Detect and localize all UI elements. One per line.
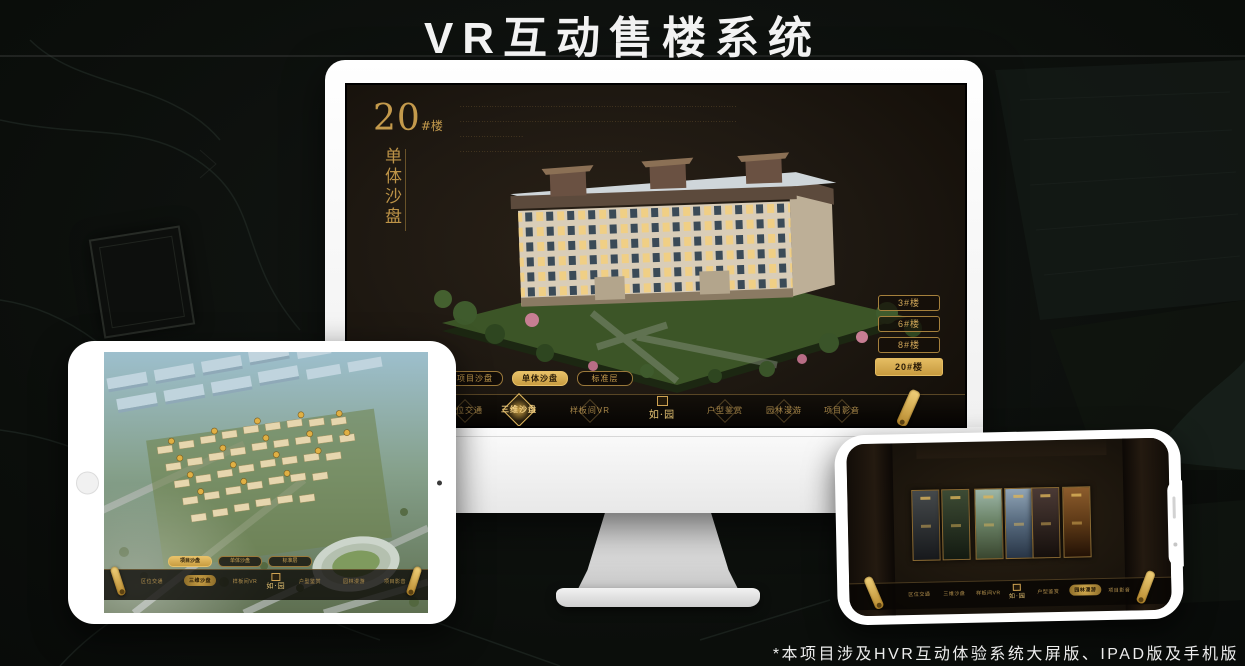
tablet-nav-showroom-vr[interactable]: 样板间VR — [233, 578, 257, 585]
tablet-nav-3d-sandtable[interactable]: 三维沙盘 — [184, 575, 216, 586]
floor-button-group: 3#楼 6#楼 8#楼 20#楼 — [875, 295, 943, 381]
floor-button-3[interactable]: 3#楼 — [878, 295, 940, 311]
tablet-nav-unit-gallery[interactable]: 户型鉴赏 — [299, 578, 321, 585]
brand-text: 如·园 — [266, 581, 285, 591]
phone-device: 区位交通 三维沙盘 样板间VR 如·园 户型鉴赏 园林漫游 项目影音 — [834, 428, 1184, 625]
phone-notch — [1167, 480, 1184, 566]
intro-line: ········································… — [460, 145, 642, 160]
scroll-icon[interactable] — [406, 565, 423, 596]
scroll-menu-icon[interactable] — [896, 388, 922, 427]
scene-panel-interior[interactable] — [1062, 486, 1091, 558]
phone-screen: 区位交通 三维沙盘 样板间VR 如·园 户型鉴赏 园林漫游 项目影音 — [846, 438, 1172, 617]
subtab-single-sandtable[interactable]: 单体沙盘 — [512, 371, 568, 386]
sandtable-subtabs: 项目沙盘 单体沙盘 标准层 — [447, 371, 633, 386]
phone-bottom-nav: 区位交通 三维沙盘 样板间VR 如·园 户型鉴赏 园林漫游 项目影音 — [849, 577, 1171, 611]
tablet-screen: 项目沙盘 单体沙盘 标准层 区位交通 三维沙盘 样板间VR 如·园 户型鉴赏 园… — [104, 352, 428, 613]
subtab-standard-floor[interactable]: 标准层 — [577, 371, 633, 386]
phone-nav-showroom-vr[interactable]: 样板间VR — [976, 589, 1001, 597]
tablet-brand-logo: 如·园 — [266, 572, 285, 591]
floor-button-6[interactable]: 6#楼 — [878, 316, 940, 332]
tablet-subtab-standard-floor[interactable]: 标准层 — [268, 556, 312, 567]
phone-nav-project-media[interactable]: 项目影音 — [1108, 586, 1130, 593]
building-number-suffix: #楼 — [421, 119, 443, 133]
intro-line: ········································… — [460, 130, 524, 145]
nav-item-unit-gallery[interactable]: 户型鉴赏 — [693, 399, 757, 422]
monitor-stand-base — [556, 588, 760, 607]
phone-nav-unit-gallery[interactable]: 户型鉴赏 — [1037, 588, 1059, 595]
tablet-camera-icon — [437, 480, 442, 485]
tablet-subtab-project-sandtable[interactable]: 项目沙盘 — [168, 556, 212, 567]
nav-item-label: 三维沙盘 — [501, 396, 537, 415]
nav-item-showroom-vr[interactable]: 样板间VR — [558, 399, 622, 422]
footnote-text: *本项目涉及HVR互动体验系统大屏版、IPAD版及手机版 — [773, 640, 1239, 664]
tablet-subtab-single-sandtable[interactable]: 单体沙盘 — [218, 556, 262, 567]
intro-line: ········································… — [460, 115, 828, 130]
nav-item-3d-sandtable[interactable]: 三维沙盘 — [481, 396, 557, 424]
scene-panel-aerial-view[interactable] — [974, 488, 1003, 560]
seal-icon — [657, 396, 668, 406]
building-number: 20 — [373, 98, 421, 139]
scene-panel-street-night[interactable] — [1031, 487, 1060, 559]
vertical-divider — [405, 149, 406, 231]
nav-item-label: 样板间VR — [570, 399, 610, 416]
speaker-icon — [1172, 497, 1175, 519]
tablet-nav-location[interactable]: 区位交通 — [141, 578, 163, 585]
brand-text: 如·园 — [1009, 591, 1026, 600]
tablet-bottom-nav: 区位交通 三维沙盘 样板间VR 如·园 户型鉴赏 园林漫游 项目影音 — [104, 569, 428, 600]
phone-nav-location[interactable]: 区位交通 — [908, 591, 930, 598]
page-title: VR互动售楼系统 — [0, 2, 1245, 66]
nav-item-garden-roam[interactable]: 园林漫游 — [752, 399, 816, 422]
brand-logo: 如·园 — [634, 395, 690, 421]
scene-panel-courtyard[interactable] — [911, 489, 940, 561]
nav-item-project-media[interactable]: 项目影音 — [810, 399, 874, 422]
brand-text: 如·园 — [634, 406, 690, 421]
phone-nav-garden-roam[interactable]: 园林漫游 — [1069, 584, 1101, 596]
tablet-nav-garden-roam[interactable]: 园林漫游 — [343, 578, 365, 585]
interior-beam — [916, 439, 1106, 459]
scroll-icon[interactable] — [110, 565, 127, 596]
floor-button-8[interactable]: 8#楼 — [878, 337, 940, 353]
tablet-device: 项目沙盘 单体沙盘 标准层 区位交通 三维沙盘 样板间VR 如·园 户型鉴赏 园… — [68, 341, 456, 624]
scene-panel-garden[interactable] — [941, 489, 970, 561]
seal-icon — [271, 573, 280, 581]
nav-item-label: 园林漫游 — [766, 399, 802, 416]
vertical-section-title: 单体沙盘 — [379, 147, 404, 227]
nav-item-label: 户型鉴赏 — [707, 399, 743, 416]
phone-brand-logo: 如·园 — [1009, 583, 1026, 600]
nav-item-label: 项目影音 — [824, 399, 860, 416]
phone-nav-3d-sandtable[interactable]: 三维沙盘 — [943, 590, 965, 597]
intro-paragraph: ········································… — [460, 100, 860, 160]
camera-icon — [1173, 542, 1177, 546]
scene-panel-building-facade[interactable] — [1004, 488, 1033, 560]
tablet-subtabs: 项目沙盘 单体沙盘 标准层 — [168, 556, 312, 567]
promo-canvas: VR互动售楼系统 — [0, 0, 1245, 666]
background-plaque — [89, 225, 196, 338]
floor-button-20[interactable]: 20#楼 — [875, 358, 943, 376]
tablet-nav-project-media[interactable]: 项目影音 — [384, 578, 406, 585]
tablet-home-button[interactable] — [76, 471, 99, 494]
intro-line: ········································… — [460, 100, 845, 115]
screen-heading: 20#楼 — [373, 101, 443, 137]
